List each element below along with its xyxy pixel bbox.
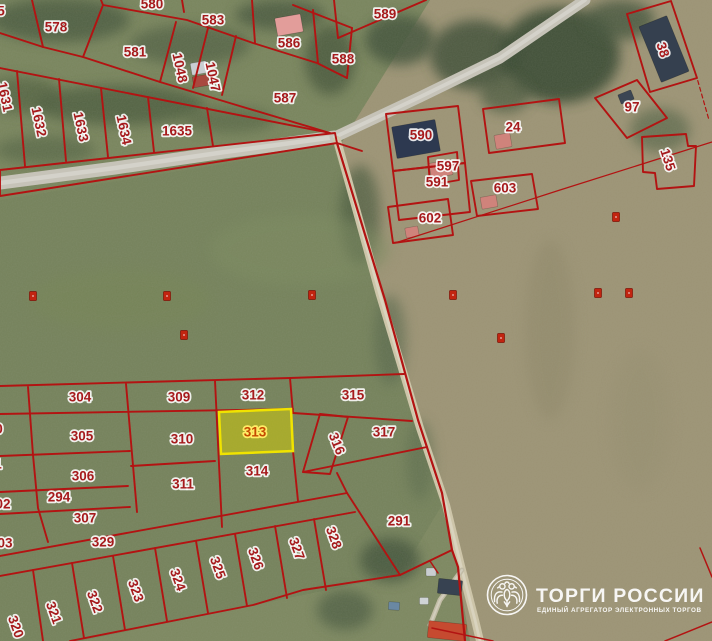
- building-roof: [494, 133, 512, 150]
- building-roof: [426, 568, 436, 576]
- parcel-label-291: 291: [388, 514, 411, 529]
- parcel-label-304: 304: [69, 390, 92, 405]
- parcel-label-586: 586: [278, 36, 301, 51]
- parcel-label-1635: 1635: [162, 124, 193, 139]
- building-roof: [388, 602, 400, 611]
- parcel-label-03: 03: [0, 536, 13, 551]
- parcel-label-309: 309: [168, 390, 191, 405]
- watermark-subtitle: ЕДИНЫЙ АГРЕГАТОР ЭЛЕКТРОННЫХ ТОРГОВ: [537, 605, 702, 614]
- marker-dot: [597, 292, 599, 294]
- parcel-label-306: 306: [72, 469, 95, 484]
- marker-dot: [32, 295, 34, 297]
- parcel-label-97: 97: [624, 100, 639, 115]
- parcel-label-603: 603: [494, 181, 517, 196]
- parcel-label-317: 317: [373, 425, 396, 440]
- parcel-label-587: 587: [274, 91, 297, 106]
- parcel-label-294: 294: [48, 490, 71, 505]
- parcel-label-310: 310: [171, 432, 194, 447]
- parcel-label-583: 583: [202, 13, 225, 28]
- parcel-label-0: 0: [0, 422, 3, 437]
- parcel-label-24: 24: [505, 120, 521, 135]
- parcel-label-307: 307: [74, 511, 97, 526]
- marker-dot: [183, 334, 185, 336]
- marker-dot: [452, 294, 454, 296]
- cadastral-map-viewport[interactable]: 5578580583586588589581104810475871631163…: [0, 0, 712, 641]
- marker-dot: [615, 216, 617, 218]
- parcel-label-589: 589: [374, 7, 397, 22]
- parcel-label-311: 311: [172, 477, 194, 492]
- parcel-label-315: 315: [342, 388, 365, 403]
- parcel-label-602: 602: [419, 211, 442, 226]
- watermark-title: ТОРГИ РОССИИ: [536, 585, 705, 607]
- parcel-label-581: 581: [124, 45, 147, 60]
- parcel-label-588: 588: [332, 52, 355, 67]
- parcel-label-5: 5: [0, 4, 5, 19]
- building-roof: [420, 598, 429, 605]
- marker-dot: [166, 295, 168, 297]
- cadastral-map: 5578580583586588589581104810475871631163…: [0, 0, 712, 641]
- parcel-label-314: 314: [246, 464, 269, 479]
- parcel-label-591: 591: [426, 175, 449, 190]
- marker-dot: [500, 337, 502, 339]
- parcel-label-580: 580: [141, 0, 164, 12]
- parcel-label-329: 329: [92, 535, 115, 550]
- parcel-label-02: 02: [0, 497, 11, 512]
- parcel-label-305: 305: [71, 429, 94, 444]
- parcel-label-312: 312: [242, 388, 265, 403]
- building-roof: [480, 195, 498, 210]
- marker-dot: [311, 294, 313, 296]
- marker-dot: [628, 292, 630, 294]
- parcel-label-597: 597: [437, 159, 460, 174]
- parcel-label-590: 590: [410, 128, 433, 143]
- parcel-label-313[interactable]: 313: [244, 425, 267, 440]
- parcel-label-578: 578: [45, 20, 68, 35]
